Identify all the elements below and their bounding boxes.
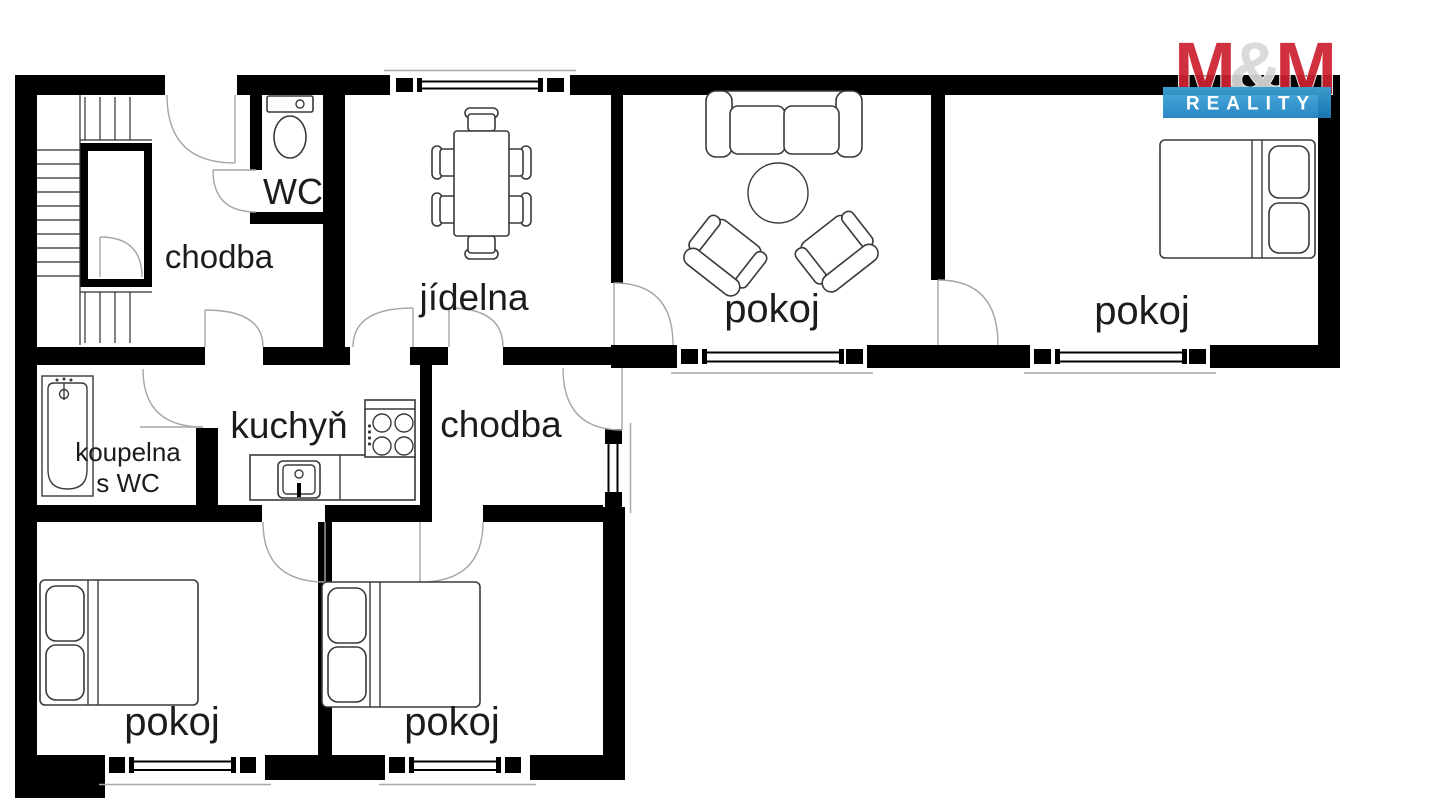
door-icon — [140, 369, 203, 427]
room-label-living: pokoj — [724, 287, 820, 331]
door-icon — [614, 283, 673, 345]
door-icon — [563, 368, 622, 430]
room-label-dining: jídelna — [418, 277, 528, 318]
bathtub-icon — [42, 376, 93, 496]
pillow-icon — [1269, 146, 1309, 198]
double-bed-icon — [1160, 140, 1315, 258]
wall-segment — [611, 345, 677, 368]
sink-icon — [278, 461, 320, 498]
room-label-bedroom-bottom-middle: pokoj — [404, 700, 500, 744]
door-icon — [213, 170, 256, 212]
coffee-table-icon — [748, 163, 808, 223]
wall-segment — [1210, 345, 1340, 368]
window-icon — [99, 757, 271, 785]
wall-segment — [37, 505, 262, 522]
door-icon — [938, 280, 998, 345]
door-icon — [420, 522, 483, 582]
brand-reality-label: REALITY — [1186, 94, 1316, 115]
window-icon — [1024, 349, 1216, 373]
wall-segment — [931, 95, 945, 280]
room-label-hall-top: chodba — [165, 238, 274, 275]
wall-segment — [611, 95, 623, 283]
sofa-icon — [706, 91, 862, 157]
pillow-icon — [328, 647, 366, 702]
double-bed-icon — [322, 582, 480, 707]
wall-segment — [867, 345, 1030, 368]
wall-segment — [420, 365, 432, 522]
door-icon — [353, 308, 413, 347]
toilet-icon — [267, 96, 313, 158]
wall-segment — [410, 347, 448, 365]
pillow-icon — [46, 586, 84, 641]
door-icon — [263, 522, 325, 582]
window-icon — [384, 71, 576, 93]
double-bed-icon — [40, 580, 198, 705]
window-icon — [671, 349, 873, 373]
pillow-icon — [46, 645, 84, 700]
wall-segment — [15, 755, 105, 798]
pillow-icon — [1269, 203, 1309, 253]
wall-segment — [15, 75, 37, 798]
door-icon — [205, 310, 263, 347]
room-label-bathroom-line1: koupelna — [75, 437, 181, 467]
window-icon — [379, 757, 536, 785]
window-icon — [605, 423, 631, 513]
room-label-kitchen: kuchyň — [230, 405, 347, 446]
wall-segment — [1318, 75, 1340, 368]
wall-segment — [603, 507, 625, 757]
wall-segment — [37, 347, 205, 365]
wall-segment — [323, 95, 345, 347]
wall-segment — [325, 505, 420, 522]
room-label-bedroom-bottom-left: pokoj — [124, 700, 220, 744]
room-label-hall-lower: chodba — [440, 404, 562, 445]
room-label-bathroom-line2: s WC — [96, 468, 160, 498]
pillow-icon — [328, 588, 366, 643]
dining-chair-icon — [468, 236, 495, 253]
armchair-icon — [792, 207, 884, 297]
floor-plan-canvas: chodba WC jídelna pokoj pokoj kuchyň cho… — [0, 0, 1440, 810]
floor-plan: chodba WC jídelna pokoj pokoj kuchyň cho… — [0, 0, 1440, 810]
wall-segment — [237, 75, 390, 95]
wall-segment — [530, 755, 625, 780]
room-label-wc: WC — [263, 171, 323, 212]
wall-segment — [503, 347, 611, 365]
wall-segment — [263, 347, 350, 365]
stove-icon — [365, 400, 415, 457]
wall-segment — [15, 75, 165, 95]
wall-segment — [250, 95, 262, 170]
wall-segment — [483, 505, 603, 522]
brand-logo: M&M REALITY — [1163, 27, 1332, 118]
dining-table-icon — [432, 108, 531, 259]
wall-segment — [265, 755, 385, 780]
dining-chair-icon — [468, 114, 495, 131]
room-label-bedroom-right: pokoj — [1094, 289, 1190, 333]
door-icon — [167, 95, 235, 163]
closet-interior — [88, 151, 144, 279]
kitchen-counter-icon — [250, 455, 415, 500]
